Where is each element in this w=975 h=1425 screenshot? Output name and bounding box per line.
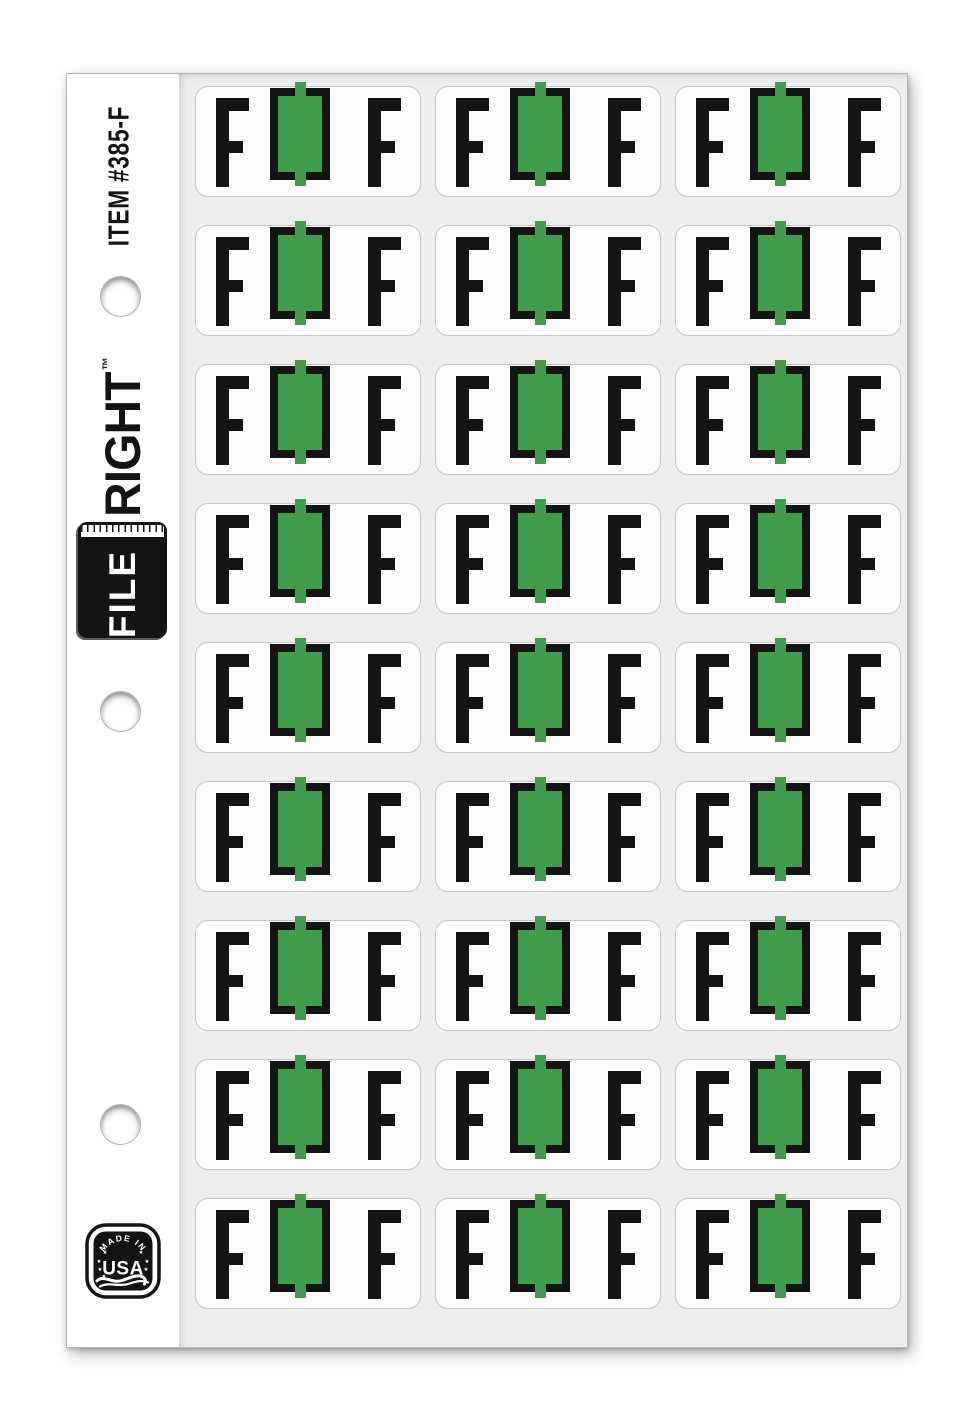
- letter-f-right: [368, 237, 401, 326]
- letter-f-left: [216, 1210, 249, 1299]
- letter-f-left: [696, 1210, 729, 1299]
- green-color-tab: [750, 88, 810, 180]
- letter-f-left: [216, 515, 249, 604]
- file-label: [675, 364, 901, 475]
- green-color-tab: [510, 88, 570, 180]
- letter-f-right: [848, 376, 881, 465]
- file-label: [675, 920, 901, 1031]
- file-folder-logo-icon: FILE: [78, 522, 167, 638]
- file-label: [435, 86, 661, 197]
- file-label: [195, 1198, 421, 1309]
- green-color-tab: [510, 1200, 570, 1292]
- green-color-tab: [750, 922, 810, 1014]
- letter-f-left: [456, 932, 489, 1021]
- green-color-tab: [270, 227, 330, 319]
- letter-f-right: [368, 1210, 401, 1299]
- green-color-tab: [750, 227, 810, 319]
- letter-f-right: [848, 98, 881, 187]
- letter-f-left: [696, 376, 729, 465]
- file-label: [195, 920, 421, 1031]
- green-color-tab: [510, 366, 570, 458]
- punch-hole-icon: [100, 276, 141, 317]
- file-label: [195, 1059, 421, 1170]
- star-icon: ★: [144, 1266, 149, 1273]
- green-color-tab: [750, 1061, 810, 1153]
- green-color-tab: [750, 366, 810, 458]
- item-number-text: ITEM #385-F: [104, 106, 137, 247]
- star-icon: ★: [103, 1249, 108, 1256]
- file-label: [435, 642, 661, 753]
- file-label: [435, 225, 661, 336]
- green-color-tab: [510, 783, 570, 875]
- file-label: [435, 503, 661, 614]
- file-label: [195, 781, 421, 892]
- green-color-tab: [510, 922, 570, 1014]
- brand-rail: ITEM #385-F RIGHT™ FILE MADE IN USA ★ ★ …: [67, 74, 179, 1347]
- letter-f-right: [368, 654, 401, 743]
- brand-right-word: RIGHT: [95, 372, 151, 517]
- file-label: [675, 781, 901, 892]
- green-color-tab: [510, 505, 570, 597]
- letter-f-right: [848, 237, 881, 326]
- letter-f-left: [216, 98, 249, 187]
- ruler-icon: [81, 525, 164, 537]
- file-label: [675, 225, 901, 336]
- punch-hole-icon: [100, 691, 141, 732]
- letter-f-left: [696, 932, 729, 1021]
- trademark-symbol: ™: [99, 357, 115, 370]
- file-label: [435, 920, 661, 1031]
- green-color-tab: [750, 644, 810, 736]
- file-label: [195, 86, 421, 197]
- file-label: [675, 642, 901, 753]
- letter-f-left: [696, 654, 729, 743]
- green-color-tab: [270, 1061, 330, 1153]
- file-label: [675, 1059, 901, 1170]
- letter-f-left: [456, 1071, 489, 1160]
- letter-f-right: [608, 793, 641, 882]
- letter-f-right: [848, 932, 881, 1021]
- letter-f-left: [216, 376, 249, 465]
- green-color-tab: [750, 505, 810, 597]
- letter-f-right: [848, 515, 881, 604]
- letter-f-right: [368, 793, 401, 882]
- file-label: [195, 642, 421, 753]
- letter-f-left: [456, 98, 489, 187]
- green-color-tab: [270, 644, 330, 736]
- star-icon: ★: [98, 1266, 103, 1273]
- file-label: [435, 1198, 661, 1309]
- letter-f-left: [696, 237, 729, 326]
- label-grid: [179, 74, 907, 1347]
- letter-f-right: [368, 98, 401, 187]
- letter-f-right: [608, 1210, 641, 1299]
- letter-f-right: [608, 932, 641, 1021]
- green-color-tab: [270, 783, 330, 875]
- green-color-tab: [750, 1200, 810, 1292]
- letter-f-right: [608, 1071, 641, 1160]
- letter-f-left: [696, 515, 729, 604]
- letter-f-left: [456, 515, 489, 604]
- file-label: [435, 781, 661, 892]
- file-label: [675, 503, 901, 614]
- letter-f-left: [696, 793, 729, 882]
- letter-f-right: [368, 376, 401, 465]
- letter-f-right: [608, 98, 641, 187]
- green-color-tab: [270, 505, 330, 597]
- letter-f-left: [216, 237, 249, 326]
- green-color-tab: [510, 1061, 570, 1153]
- star-icon: ★: [145, 1258, 150, 1265]
- letter-f-right: [368, 515, 401, 604]
- file-label: [675, 86, 901, 197]
- green-color-tab: [270, 1200, 330, 1292]
- punch-hole-icon: [100, 1104, 141, 1145]
- label-sheet-page: ITEM #385-F RIGHT™ FILE MADE IN USA ★ ★ …: [66, 73, 908, 1348]
- file-label: [435, 364, 661, 475]
- star-icon: ★: [97, 1258, 102, 1265]
- star-icon: ★: [139, 1249, 144, 1256]
- letter-f-right: [368, 932, 401, 1021]
- brand-right-text: RIGHT™: [94, 357, 152, 517]
- letter-f-right: [368, 1071, 401, 1160]
- letter-f-right: [608, 376, 641, 465]
- letter-f-right: [848, 1071, 881, 1160]
- letter-f-left: [696, 98, 729, 187]
- letter-f-right: [608, 654, 641, 743]
- brand-file-word: FILE: [102, 550, 144, 638]
- green-color-tab: [510, 644, 570, 736]
- letter-f-right: [848, 654, 881, 743]
- letter-f-left: [696, 1071, 729, 1160]
- letter-f-left: [456, 237, 489, 326]
- letter-f-left: [216, 932, 249, 1021]
- green-color-tab: [510, 227, 570, 319]
- letter-f-left: [216, 654, 249, 743]
- letter-f-right: [848, 1210, 881, 1299]
- letter-f-left: [216, 1071, 249, 1160]
- green-color-tab: [270, 366, 330, 458]
- letter-f-right: [608, 237, 641, 326]
- green-color-tab: [270, 922, 330, 1014]
- file-label: [195, 503, 421, 614]
- letter-f-left: [456, 793, 489, 882]
- letter-f-right: [608, 515, 641, 604]
- file-label: [195, 364, 421, 475]
- green-color-tab: [750, 783, 810, 875]
- green-color-tab: [270, 88, 330, 180]
- letter-f-left: [456, 376, 489, 465]
- file-label: [675, 1198, 901, 1309]
- file-label: [435, 1059, 661, 1170]
- file-label: [195, 225, 421, 336]
- letter-f-right: [848, 793, 881, 882]
- letter-f-left: [456, 1210, 489, 1299]
- letter-f-left: [456, 654, 489, 743]
- made-in-usa-badge-icon: MADE IN USA ★ ★ ★ ★ ★ ★ ★ ★: [85, 1223, 161, 1299]
- letter-f-left: [216, 793, 249, 882]
